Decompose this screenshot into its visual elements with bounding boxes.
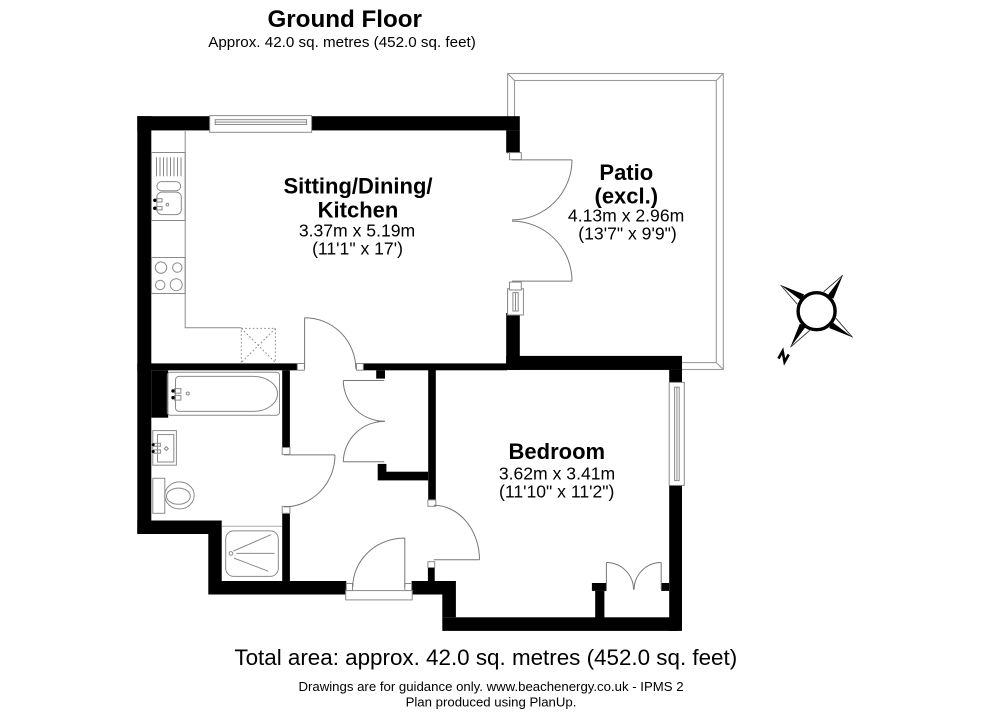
- svg-text:Total area: approx. 42.0 sq. m: Total area: approx. 42.0 sq. metres (452…: [234, 645, 737, 670]
- svg-text:3.62m x 3.41m: 3.62m x 3.41m: [499, 464, 615, 484]
- svg-text:Approx. 42.0 sq. metres (452.0: Approx. 42.0 sq. metres (452.0 sq. feet): [208, 34, 476, 51]
- svg-text:Drawings are for guidance only: Drawings are for guidance only. www.beac…: [298, 679, 683, 694]
- svg-text:Patio: Patio: [599, 160, 653, 185]
- svg-text:(11'10" x 11'2"): (11'10" x 11'2"): [499, 482, 614, 502]
- svg-text:Plan produced using PlanUp.: Plan produced using PlanUp.: [406, 695, 577, 710]
- svg-text:4.13m x 2.96m: 4.13m x 2.96m: [568, 206, 684, 226]
- svg-text:Sitting/Dining/: Sitting/Dining/: [283, 174, 432, 199]
- svg-text:Kitchen: Kitchen: [318, 198, 399, 223]
- svg-text:(13'7" x 9'9"): (13'7" x 9'9"): [578, 224, 676, 244]
- svg-text:3.37m x 5.19m: 3.37m x 5.19m: [299, 221, 415, 241]
- svg-text:Ground Floor: Ground Floor: [267, 6, 422, 33]
- svg-text:(11'1" x 17'): (11'1" x 17'): [312, 239, 403, 259]
- svg-text:Bedroom: Bedroom: [509, 439, 606, 464]
